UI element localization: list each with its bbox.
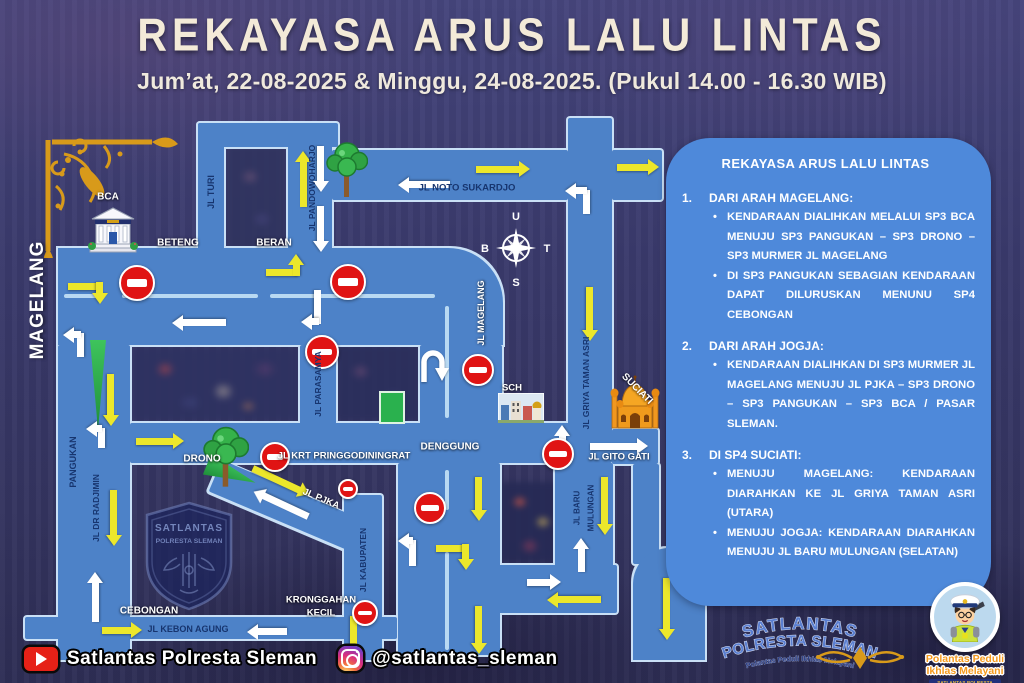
traffic-flow-arrow	[172, 315, 226, 331]
section-number: 2.	[676, 339, 709, 434]
traffic-flow-arrow	[582, 287, 598, 341]
section-heading: DARI ARAH JOGJA:	[709, 339, 975, 353]
poster: REKAYASA ARUS LALU LINTAS Jum’at, 22-08-…	[0, 0, 1024, 683]
section-number: 1.	[676, 191, 709, 325]
traffic-flow-arrow	[103, 374, 119, 426]
compass-south-label: S	[512, 277, 519, 288]
no-entry-sign-icon	[462, 354, 494, 386]
road-segment	[612, 150, 662, 200]
traffic-flow-arrow	[102, 622, 142, 638]
road-label: BETENG	[157, 238, 199, 249]
section-bullets: KENDARAAN DIALIHKAN MELALUI SP3 BCA MENU…	[709, 208, 975, 325]
section-bullet: KENDARAAN DIALIHKAN DI SP3 MURMER JL MAG…	[713, 356, 975, 434]
traffic-flow-arrow	[247, 624, 287, 640]
traffic-flow-arrow	[471, 477, 487, 521]
road-label: DRONO	[183, 454, 220, 465]
traffic-flow-arrow	[106, 490, 122, 546]
section-bullet: DI SP3 PANGUKAN SEBAGIAN KENDARAAN DAPAT…	[713, 267, 975, 326]
road-label: JL GITO GATI	[588, 452, 649, 463]
header: REKAYASA ARUS LALU LINTAS Jum’at, 22-08-…	[0, 0, 1024, 95]
road-label: SCH	[502, 383, 522, 394]
traffic-flow-arrow	[136, 433, 184, 449]
road-label: JL MAGELANG	[476, 280, 486, 345]
watermark-line2: POLRESTA SLEMAN	[156, 538, 223, 545]
section-bullet: MENUJU JOGJA: KENDARAAN DIARAHKAN MENUJU…	[713, 524, 975, 563]
panel-sections: 1.DARI ARAH MAGELANG:KENDARAAN DIALIHKAN…	[676, 191, 975, 563]
page-subtitle: Jum’at, 22-08-2025 & Minggu, 24-08-2025.…	[0, 68, 1024, 95]
traffic-flow-arrow	[547, 592, 601, 608]
mascot-badge: Polantas Peduli Ikhlas Melayani SATLANTA…	[922, 582, 1008, 683]
no-entry-sign-icon	[542, 438, 574, 470]
traffic-flow-arrow	[597, 477, 613, 535]
social-bar: Satlantas Polresta Sleman @satlantas_sle…	[24, 646, 558, 671]
tree-icon	[326, 140, 368, 198]
police-mascot-icon	[938, 588, 992, 642]
traffic-flow-arrow	[92, 282, 108, 304]
page-title: REKAYASA ARUS LALU LINTAS	[0, 9, 1024, 62]
panel-section: 1.DARI ARAH MAGELANG:KENDARAAN DIALIHKAN…	[676, 191, 975, 325]
panel-title: REKAYASA ARUS LALU LINTAS	[676, 156, 975, 171]
road-label: KECIL	[307, 608, 336, 619]
compass-north-label: U	[512, 211, 520, 223]
mascot-avatar	[930, 582, 1000, 652]
crowd-photo-block	[132, 347, 298, 421]
traffic-flow-arrow	[659, 578, 675, 640]
section-bullet: KENDARAAN DIALIHKAN MELALUI SP3 BCA MENU…	[713, 208, 975, 267]
road-label: PANGUKAN	[68, 436, 78, 487]
compass-rose-icon: U T S B	[478, 204, 554, 288]
no-entry-sign-icon	[414, 492, 446, 524]
section-bullets: MENUJU MAGELANG: KENDARAAN DIARAHKAN KE …	[709, 465, 975, 563]
road-label: JL TURI	[206, 175, 216, 209]
section-body: DARI ARAH JOGJA:KENDARAAN DIALIHKAN DI S…	[709, 339, 975, 434]
crowd-photo-block	[226, 145, 286, 251]
no-entry-sign-icon	[330, 264, 366, 300]
compass-east-label: T	[544, 243, 551, 255]
road-label: JL GRIYA TAMAN ASRI	[581, 337, 591, 430]
crowd-photo-block	[336, 345, 418, 421]
traffic-flow-arrow	[86, 421, 102, 437]
traffic-flow-arrow	[476, 161, 530, 177]
traffic-flow-arrow	[573, 538, 589, 572]
traffic-flow-arrow	[458, 544, 474, 570]
road-label: JL PANDOWOHARJO	[307, 145, 317, 232]
road-segment	[633, 464, 659, 564]
road-label: BERAN	[256, 238, 292, 249]
instagram-handle-label[interactable]: @satlantas_sleman	[372, 648, 557, 670]
youtube-channel-label[interactable]: Satlantas Polresta Sleman	[67, 648, 317, 670]
section-body: DARI ARAH MAGELANG:KENDARAAN DIALIHKAN M…	[709, 191, 975, 325]
section-heading: DI SP4 SUCIATI:	[709, 448, 975, 462]
road-label: JL KRT PRINGGODININGRAT	[278, 451, 411, 462]
youtube-icon[interactable]	[24, 647, 58, 671]
info-panel: REKAYASA ARUS LALU LINTAS 1.DARI ARAH MA…	[666, 138, 991, 606]
lane-divider	[445, 552, 449, 650]
road-label: DENGGUNG	[421, 442, 480, 453]
mascot-ribbon: SATLANTAS POLRESTA SLEMAN	[929, 679, 1001, 683]
no-entry-sign-icon	[338, 479, 358, 499]
mascot-tagline-line2: Ikhlas Melayani	[922, 666, 1008, 678]
no-entry-sign-icon	[119, 265, 155, 301]
u-turn-arrow-icon	[416, 346, 450, 384]
section-body: DI SP4 SUCIATI:MENUJU MAGELANG: KENDARAA…	[709, 448, 975, 563]
panel-section: 3.DI SP4 SUCIATI:MENUJU MAGELANG: KENDAR…	[676, 448, 975, 563]
road-label: JL NOTO SUKARDJO	[419, 183, 516, 194]
road-label: KRONGGAHAN	[286, 595, 356, 606]
road-label: JL KEBON AGUNG	[147, 624, 228, 634]
mascot-tagline-line1: Polantas Peduli	[922, 654, 1008, 666]
road-label: JL PARASAMYA	[313, 351, 323, 417]
section-bullets: KENDARAAN DIALIHKAN DI SP3 MURMER JL MAG…	[709, 356, 975, 434]
satlantas-shield-watermark: SATLANTAS POLRESTA SLEMAN	[142, 500, 236, 612]
road-label: MAGELANG	[27, 241, 49, 360]
road-label: JL KABUPATEN	[358, 528, 368, 592]
gold-flourish-icon	[812, 644, 908, 672]
bca-bank-building-icon	[84, 202, 142, 254]
traffic-flow-arrow	[398, 533, 413, 549]
traffic-flow-arrow	[301, 314, 319, 330]
panel-section: 2.DARI ARAH JOGJA:KENDARAAN DIALIHKAN DI…	[676, 339, 975, 434]
road-label: BCA	[97, 192, 119, 203]
road-label: JL BARU	[573, 491, 582, 526]
section-heading: DARI ARAH MAGELANG:	[709, 191, 975, 205]
school-building-icon	[498, 393, 544, 423]
watermark-line1: SATLANTAS	[155, 523, 223, 534]
traffic-flow-arrow	[565, 183, 587, 199]
traffic-flow-arrow	[87, 572, 103, 622]
traffic-flow-arrow	[288, 254, 304, 276]
road-label: JL DR RADJIMIN	[91, 474, 101, 542]
traffic-flow-arrow	[617, 159, 659, 175]
instagram-icon[interactable]	[338, 646, 363, 671]
traffic-flow-arrow	[527, 574, 561, 590]
road-label: MULUNGAN	[587, 485, 596, 532]
section-bullet: MENUJU MAGELANG: KENDARAAN DIARAHKAN KE …	[713, 465, 975, 524]
green-field	[379, 391, 405, 424]
compass-west-label: B	[481, 243, 489, 255]
section-number: 3.	[676, 448, 709, 563]
traffic-flow-arrow	[63, 327, 81, 343]
